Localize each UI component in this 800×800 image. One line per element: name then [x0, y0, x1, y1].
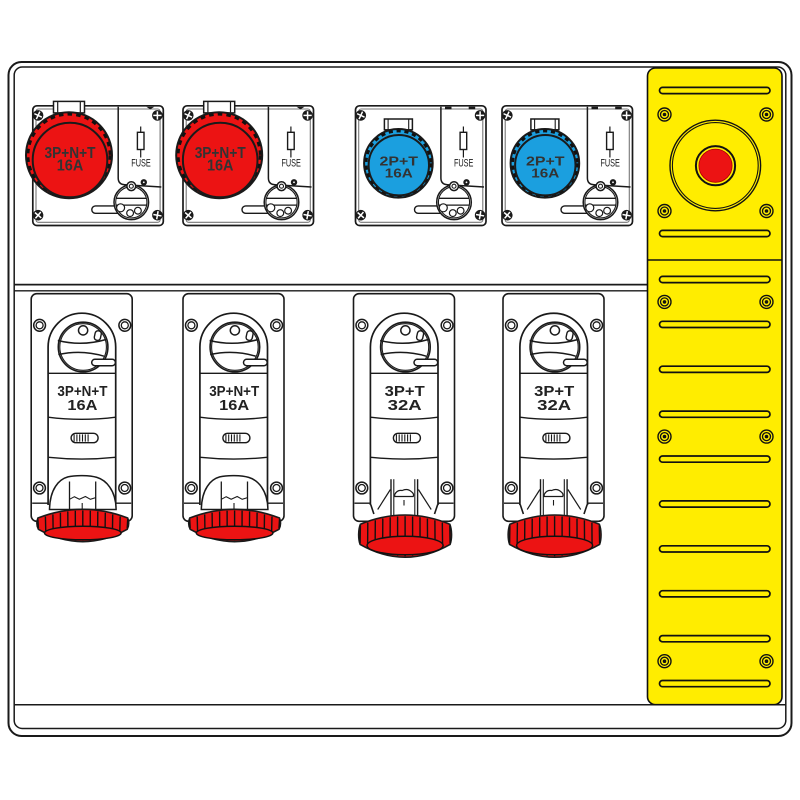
svg-text:FUSE: FUSE	[600, 157, 620, 169]
svg-text:16A: 16A	[57, 157, 84, 174]
svg-text:16A: 16A	[531, 167, 559, 181]
svg-text:16A: 16A	[207, 157, 234, 174]
svg-text:FUSE: FUSE	[281, 157, 301, 169]
svg-text:16A: 16A	[67, 398, 98, 414]
svg-text:16A: 16A	[385, 167, 413, 181]
svg-text:32A: 32A	[388, 398, 423, 414]
svg-text:16A: 16A	[219, 398, 250, 414]
svg-text:32A: 32A	[537, 398, 572, 414]
svg-text:FUSE: FUSE	[131, 157, 151, 169]
svg-text:FUSE: FUSE	[454, 157, 474, 169]
